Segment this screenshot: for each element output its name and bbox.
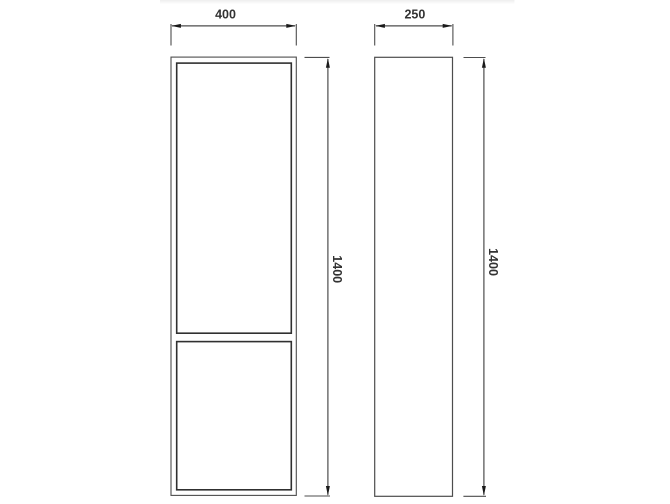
svg-text:400: 400 — [215, 8, 236, 22]
svg-text:1400: 1400 — [330, 255, 344, 283]
svg-text:250: 250 — [404, 8, 425, 22]
svg-text:1400: 1400 — [486, 248, 500, 276]
